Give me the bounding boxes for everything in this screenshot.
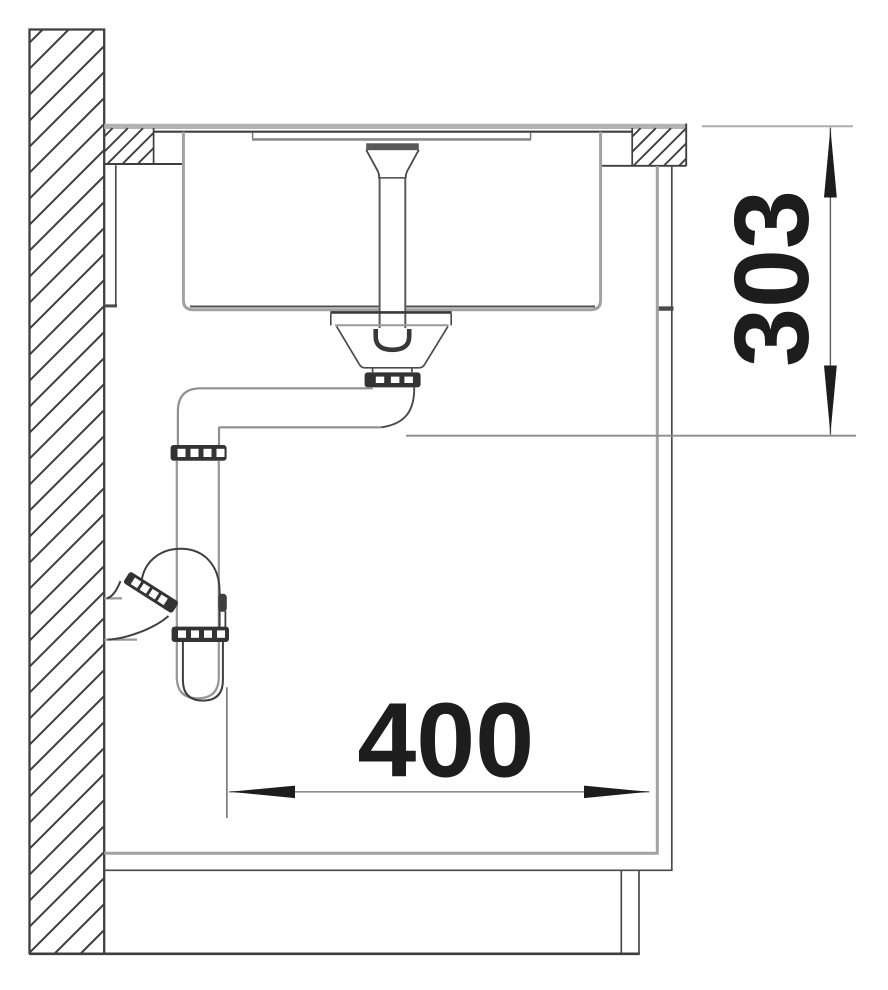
svg-text:303: 303 [713, 190, 831, 367]
svg-text:400: 400 [357, 682, 534, 800]
